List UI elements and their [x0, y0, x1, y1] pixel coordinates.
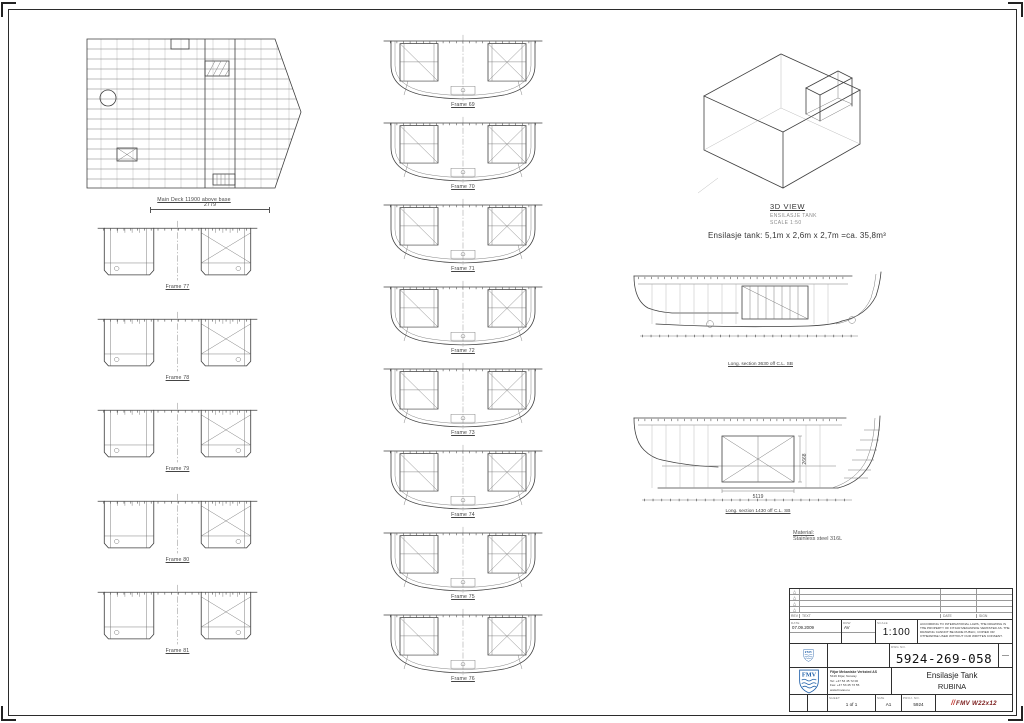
rev-header-date: DATE — [940, 614, 976, 618]
plan-view-drawing — [85, 36, 303, 194]
trim-mark — [1008, 2, 1023, 17]
mid-section-column: Frame 69 Frame 70 Frame 71 Frame 72 Fram… — [378, 34, 548, 690]
view-3d-scale: SCALE 1:50 — [770, 220, 817, 226]
cross-section-drawing — [95, 493, 260, 557]
date-value: 07.09.2009 — [792, 625, 814, 630]
stamp-text: FMV W22x12 — [956, 700, 997, 707]
long-section-2: 5119 2668 Long. section 1430 off C.L. SB — [628, 410, 888, 514]
project-value: 5924 — [902, 702, 935, 707]
cross-section: Frame 75 — [378, 526, 548, 600]
size-label: SIZE — [877, 696, 884, 700]
cross-section: Frame 80 — [95, 493, 260, 563]
dimension-2779: 2779 — [150, 202, 270, 210]
cross-section-drawing — [378, 608, 548, 676]
dimension-value: 2779 — [204, 202, 216, 208]
drawn-label: DRW — [843, 621, 851, 625]
trim-mark — [1, 2, 16, 17]
revision-triangle-icon: △ — [790, 601, 800, 606]
cross-section-drawing — [95, 402, 260, 466]
frame-caption: Frame 72 — [378, 348, 548, 354]
footer-row: SHEET 1 of 1 SIZE A1 PROJ. NO. 5924 // F… — [790, 695, 1012, 711]
scale-cell: SCALE 1:100 — [876, 620, 918, 643]
cross-section-drawing — [378, 526, 548, 594]
frame-caption: Frame 74 — [378, 512, 548, 518]
sheet-cell: SHEET 1 of 1 — [828, 695, 876, 711]
long-section-1-caption: Long. section 3630 off C.L. SB — [628, 362, 893, 367]
frame-caption: Frame 71 — [378, 266, 548, 272]
cross-section-drawing — [378, 280, 548, 348]
view-3d-labels: 3D VIEW ENSILASJE TANK SCALE 1:50 — [770, 202, 817, 226]
plan-view: Main Deck 11900 above base — [85, 36, 303, 203]
drawing-number-row: DWG NO. 5924-269-058 — — [790, 644, 1012, 668]
cross-section-drawing — [95, 311, 260, 375]
revision-triangle-icon: △ — [790, 595, 800, 600]
scale-value: 1:100 — [876, 627, 917, 638]
sheet-label: SHEET — [829, 696, 840, 700]
size-value: A1 — [876, 702, 901, 707]
frame-caption: Frame 70 — [378, 184, 548, 190]
date-label: DATE — [791, 621, 800, 625]
stamp-slashes: // — [951, 700, 955, 707]
cross-section: Frame 70 — [378, 116, 548, 190]
date-cell: DATE 07.09.2009 — [790, 620, 842, 643]
info-row: DATE 07.09.2009 DRW AV SCALE 1:100 Accor… — [790, 620, 1012, 644]
cross-section-drawing — [378, 116, 548, 184]
dimension-line — [150, 209, 270, 210]
fmv-logo-icon — [798, 669, 820, 694]
cross-section: Frame 69 — [378, 34, 548, 108]
legal-text: According to international laws, the dra… — [920, 622, 1010, 638]
drawing-title: Ensilasje Tank — [892, 671, 1012, 680]
scale-label: SCALE — [877, 621, 888, 625]
frame-caption: Frame 69 — [378, 102, 548, 108]
legal-cell: According to international laws, the dra… — [918, 620, 1012, 643]
cross-section-drawing — [95, 584, 260, 648]
project-label: PROJ. NO. — [903, 696, 920, 700]
frame-caption: Frame 75 — [378, 594, 548, 600]
revision-triangle-icon: △ — [790, 607, 800, 612]
cross-section: Frame 77 — [95, 220, 260, 290]
frame-caption: Frame 79 — [95, 466, 260, 472]
rev-header-text: TEXT — [800, 614, 940, 618]
cross-section-drawing — [378, 34, 548, 102]
long-section-2-caption: Long. section 1430 off C.L. SB — [628, 509, 888, 514]
company-info: Fitjar Mekaniske Verksted AS 5419 Fitjar… — [828, 668, 892, 694]
cross-section-drawing — [378, 444, 548, 512]
drawing-number-cell: DWG NO. 5924-269-058 — [890, 644, 999, 667]
title-block: △ △ △ △ REV TEXT DATE SIGN DATE 07.09.20… — [789, 588, 1013, 712]
cross-section: Frame 78 — [95, 311, 260, 381]
cross-section: Frame 81 — [95, 584, 260, 654]
revision-value: — — [999, 644, 1012, 667]
fmv-logo — [790, 668, 828, 694]
dwg-no-label: DWG NO. — [891, 645, 906, 649]
long-section-2-width-dim: 5119 — [753, 494, 764, 500]
cross-section-drawing — [95, 220, 260, 284]
rev-header-sign: SIGN — [976, 614, 1012, 618]
fmv-emblem-small — [790, 644, 828, 667]
sheet-value: 1 of 1 — [828, 702, 875, 707]
company-title-row: Fitjar Mekaniske Verksted AS 5419 Fitjar… — [790, 668, 1012, 695]
revision-header: REV TEXT DATE SIGN — [790, 613, 1012, 620]
long-section-1-drawing — [628, 266, 893, 358]
left-section-column: Frame 77 Frame 78 Frame 79 Frame 80 Fram… — [95, 220, 260, 675]
drawing-sheet: Main Deck 11900 above base 2779 Frame 77… — [0, 0, 1024, 723]
drawing-title-cell: Ensilasje Tank RUBINA — [892, 668, 1012, 694]
long-section-2-height-dim: 2668 — [802, 453, 808, 464]
fmv-logo-icon — [803, 649, 814, 662]
vessel-name: RUBINA — [892, 682, 1012, 691]
size-cell: SIZE A1 — [876, 695, 902, 711]
view-3d-title: 3D VIEW — [770, 202, 817, 211]
cross-section: Frame 72 — [378, 280, 548, 354]
frame-caption: Frame 80 — [95, 557, 260, 563]
stamp-cell: // FMV W22x12 — [936, 695, 1012, 711]
trim-mark — [1, 706, 16, 721]
frame-caption: Frame 78 — [95, 375, 260, 381]
tank-size-note: Ensilasje tank: 5,1m x 2,6m x 2,7m =ca. … — [708, 231, 886, 240]
frame-caption: Frame 73 — [378, 430, 548, 436]
cross-section: Frame 74 — [378, 444, 548, 518]
company-web: www.fmvas.no — [830, 688, 889, 692]
cross-section: Frame 76 — [378, 608, 548, 682]
drawing-number: 5924-269-058 — [890, 651, 998, 666]
material-value: Stainless steel 316L — [793, 536, 842, 542]
view-3d — [688, 38, 878, 198]
cross-section: Frame 79 — [95, 402, 260, 472]
project-cell: PROJ. NO. 5924 — [902, 695, 936, 711]
material-note: Material: Stainless steel 316L — [793, 530, 842, 542]
view-3d-drawing — [688, 38, 878, 198]
cross-section: Frame 71 — [378, 198, 548, 272]
frame-caption: Frame 81 — [95, 648, 260, 654]
cross-section-drawing — [378, 362, 548, 430]
rev-header-rev: REV — [790, 614, 800, 618]
cross-section-drawing — [378, 198, 548, 266]
cross-section: Frame 73 — [378, 362, 548, 436]
drawn-value: AV — [844, 625, 850, 630]
drawn-cell: DRW AV — [842, 620, 876, 643]
view-3d-subtitle: ENSILASJE TANK — [770, 213, 817, 219]
frame-caption: Frame 76 — [378, 676, 548, 682]
revision-triangle-icon: △ — [790, 589, 800, 594]
long-section-1: Long. section 3630 off C.L. SB — [628, 266, 893, 367]
long-section-2-drawing: 5119 2668 — [628, 410, 888, 506]
frame-caption: Frame 77 — [95, 284, 260, 290]
